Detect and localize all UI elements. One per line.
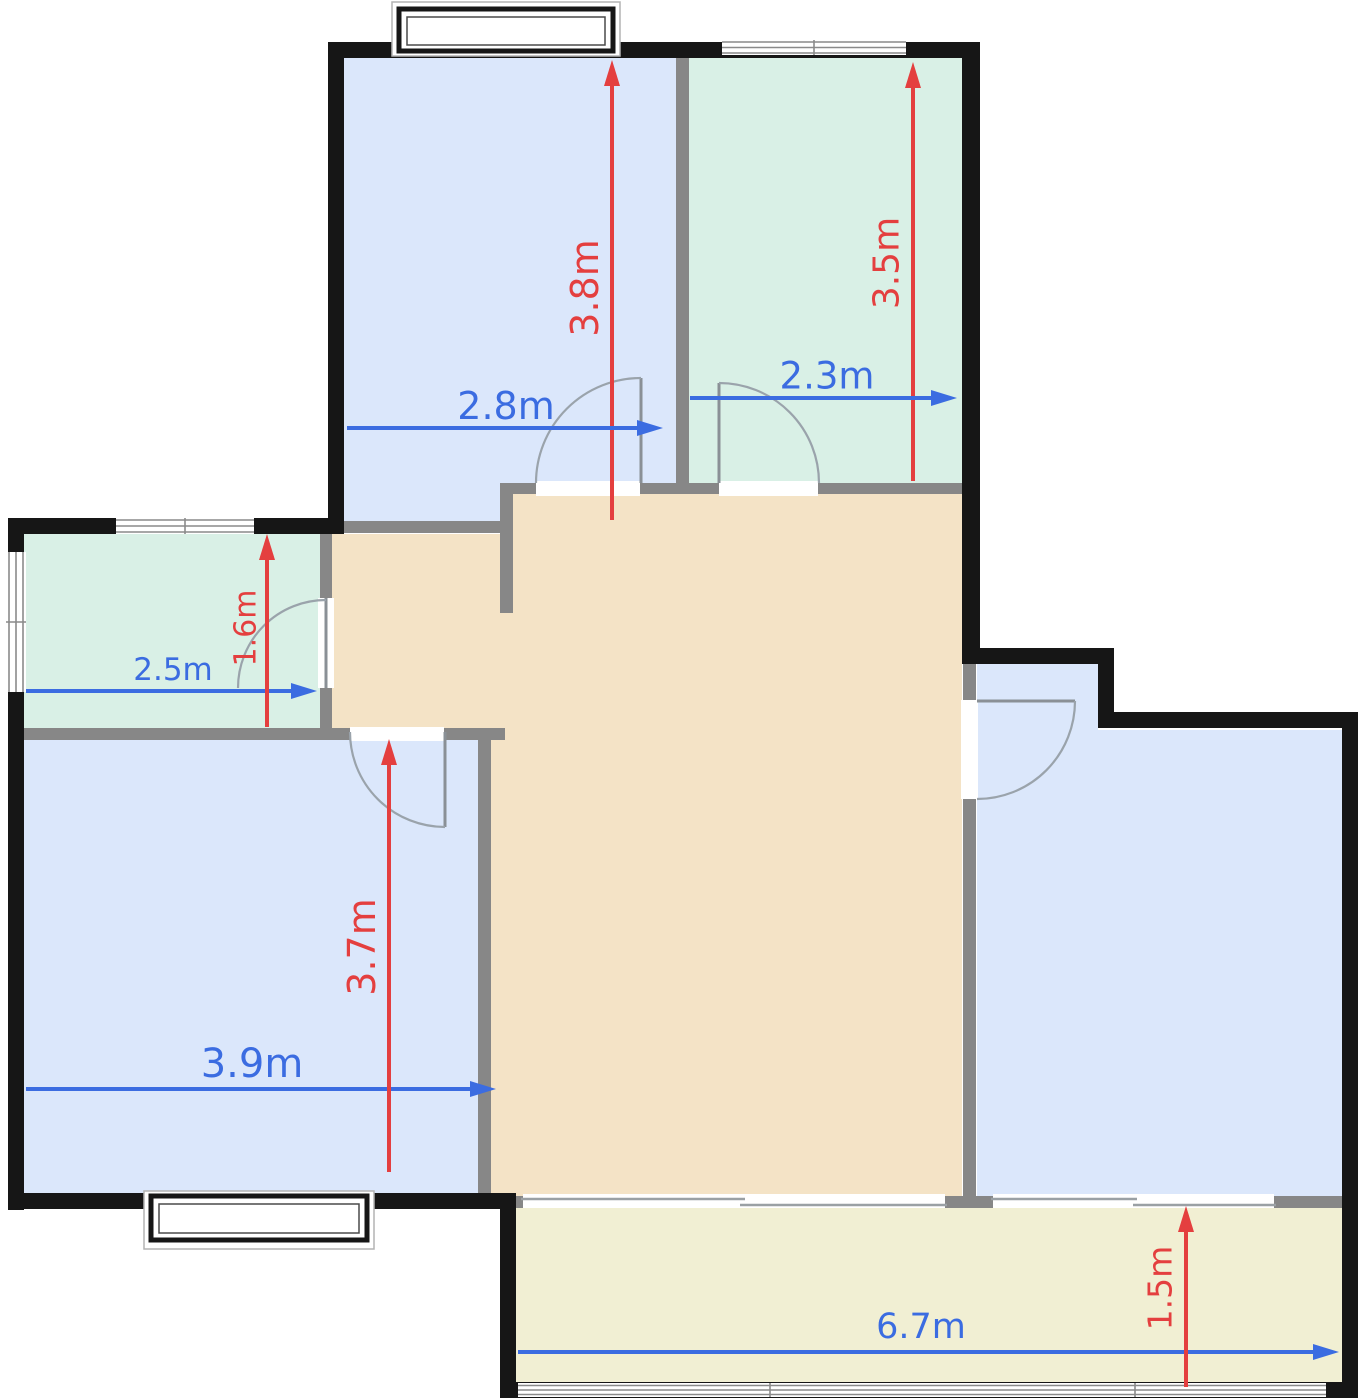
dim-label: 2.5m — [133, 652, 213, 688]
wall-rightroom-balcony-stub-r — [1274, 1196, 1342, 1208]
wall-hall-rightroom-b — [963, 799, 976, 1196]
dim-label: 3.7m — [340, 898, 384, 995]
balcony-bottom — [516, 1206, 1342, 1382]
wall-topleft-left — [328, 42, 344, 534]
dim-label: 1.6m — [229, 590, 264, 667]
wall-hall-balcony-stub-r — [945, 1196, 965, 1208]
opening-room-top-right — [719, 481, 818, 496]
opening-room-bottom-left — [350, 727, 444, 741]
wall-midleft-right-a — [320, 534, 332, 598]
wall-bottomleft-top-b — [444, 728, 505, 740]
window-top-right-room — [722, 40, 906, 55]
room-right — [977, 664, 1342, 1196]
dim-label: 3.5m — [867, 217, 908, 309]
wall-bottomleft-top-a — [24, 728, 350, 740]
wall-between-top-rooms — [676, 56, 689, 486]
room-top-right — [689, 58, 962, 483]
wall-bottomleft-hall — [478, 740, 491, 1196]
wall-rightroom-balcony-stub-l — [963, 1196, 993, 1208]
dim-label: 1.5m — [1141, 1246, 1180, 1331]
wall-hall-stub — [500, 483, 513, 613]
wall-balcony-left — [500, 1193, 516, 1398]
dim-label: 3.8m — [563, 239, 607, 336]
window-mid-left-side — [6, 552, 26, 692]
floorplan: 3.8m3.5m2.8m2.3m2.5m1.6m3.9m3.7m6.7m1.5m — [0, 0, 1361, 1400]
dim-label: 2.3m — [780, 355, 875, 398]
floorplan-page: 3.8m3.5m2.8m2.3m2.5m1.6m3.9m3.7m6.7m1.5m — [0, 0, 1361, 1400]
window-mid-left-top — [116, 518, 254, 534]
bay-window-bottom — [144, 1191, 374, 1249]
room-mid-left — [24, 534, 320, 728]
window-balcony-bottom — [518, 1383, 1326, 1397]
wall-topright-right — [962, 42, 980, 664]
wall-right — [1342, 712, 1358, 1398]
dim-label: 6.7m — [876, 1307, 966, 1347]
wall-notch-top — [962, 648, 1114, 664]
wall-hall-top-c — [818, 483, 962, 494]
room-bottom-left — [24, 740, 478, 1193]
wall-hall-top-b — [640, 483, 719, 494]
dim-label: 2.8m — [457, 384, 554, 428]
wall-hall-rightroom-a — [963, 664, 976, 700]
bay-window-top — [392, 2, 620, 56]
opening-room-right — [961, 700, 978, 799]
opening-room-top-left — [536, 481, 640, 496]
room-top-left — [344, 58, 676, 521]
wall-step-topright-h — [1098, 712, 1358, 728]
wall-topleft-room-bottom — [330, 521, 505, 533]
dim-label: 3.9m — [201, 1041, 304, 1087]
